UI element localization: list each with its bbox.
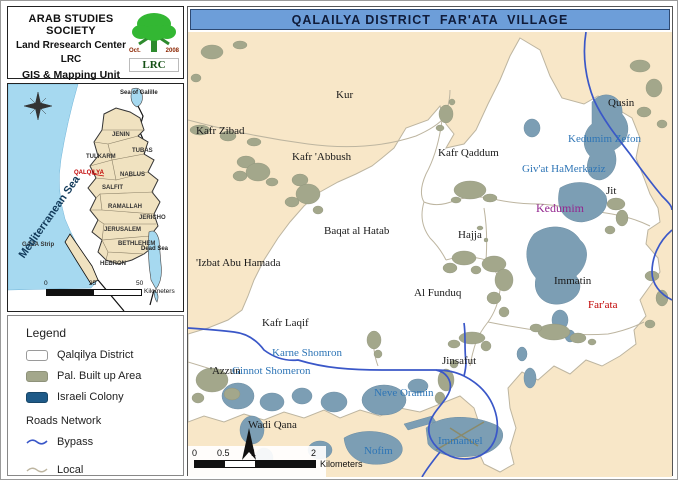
local-line-icon [26, 465, 48, 475]
colony-swatch [26, 392, 48, 403]
main-scale-bar-blocks [194, 460, 316, 468]
center-name: Land Rresearch Center [8, 40, 134, 51]
legend-label: Israeli Colony [57, 391, 124, 403]
bypass-line-icon [26, 437, 48, 447]
map-title-bar: QALAILYA DISTRICT FAR'ATA VILLAGE [190, 9, 670, 30]
tick: 0 [44, 280, 48, 287]
map-sheet: ARAB STUDIES SOCIETY Land Rresearch Cent… [0, 0, 678, 480]
tick: 2 [311, 448, 316, 458]
main-scale-unit: Kilometers [320, 459, 363, 469]
inset-label: TUBAS [132, 148, 153, 154]
district-swatch [26, 350, 48, 361]
tick: 25 [89, 280, 96, 287]
legend-label: Local [57, 464, 83, 476]
legend: Legend Qalqilya District Pal. Built up A… [7, 315, 184, 476]
legend-item-district: Qalqilya District [26, 349, 183, 361]
inset-label: HEBRON [100, 261, 126, 267]
tick: 0.5 [217, 448, 230, 458]
inset-map: Sea of GalilleJENINTUBASTULKARMQALQILYAN… [7, 83, 184, 312]
legend-label: Qalqilya District [57, 349, 133, 361]
header-text: ARAB STUDIES SOCIETY Land Rresearch Cent… [8, 11, 134, 81]
legend-label: Pal. Built up Area [57, 370, 141, 382]
inset-label: TULKARM [86, 154, 116, 160]
legend-item-bypass: Bypass [26, 436, 183, 448]
inset-label: Sea of Galille [120, 90, 158, 96]
inset-label: JENIN [112, 132, 130, 138]
inset-label: JERUSALEM [104, 227, 141, 233]
inset-label: JERICHO [139, 215, 166, 221]
legend-item-colony: Israeli Colony [26, 391, 183, 403]
inset-label: RAMALLAH [108, 204, 142, 210]
inset-label: Dead Sea [141, 246, 168, 252]
map-canvas: KurKafr ZibadKafr 'AbbushKafr QaddumQusi… [188, 32, 672, 477]
inset-label: QALQILYA [74, 170, 104, 176]
legend-title: Legend [26, 326, 183, 340]
legend-label: Bypass [57, 436, 93, 448]
logo-dates: Oct. 2008 [129, 48, 179, 54]
center-abbr: LRC [8, 54, 134, 65]
inset-scale-bar: 0 25 50 Kilometers [44, 280, 174, 302]
main-scale-bar: 0 0.5 1 2 Kilometers [190, 448, 370, 476]
tick: 1 [251, 448, 256, 458]
legend-roads-title: Roads Network [26, 415, 183, 427]
map-title: QALAILYA DISTRICT FAR'ATA VILLAGE [292, 13, 569, 27]
inset-map-svg [8, 84, 183, 311]
logo-year: 2008 [166, 48, 179, 54]
unit-name: GIS & Mapping Unit [8, 69, 134, 81]
legend-item-local: Local [26, 464, 183, 476]
tick: 0 [192, 448, 197, 458]
main-map: QALAILYA DISTRICT FAR'ATA VILLAGE [187, 6, 673, 476]
org-name: ARAB STUDIES SOCIETY [8, 13, 134, 37]
logo-abbr: LRC [129, 58, 179, 72]
logo-month: Oct. [129, 48, 141, 54]
inset-label: SALFIT [102, 185, 123, 191]
inset-scale-bar-blocks [46, 289, 142, 296]
header-box: ARAB STUDIES SOCIETY Land Rresearch Cent… [7, 6, 184, 79]
lrc-logo: Oct. 2008 LRC [129, 10, 179, 76]
inset-scale-unit: Kilometers [144, 288, 175, 295]
legend-item-builtup: Pal. Built up Area [26, 370, 183, 382]
inset-label: NABLUS [120, 172, 145, 178]
main-map-svg [188, 32, 672, 477]
builtup-swatch [26, 371, 48, 382]
tick: 50 [136, 280, 143, 287]
